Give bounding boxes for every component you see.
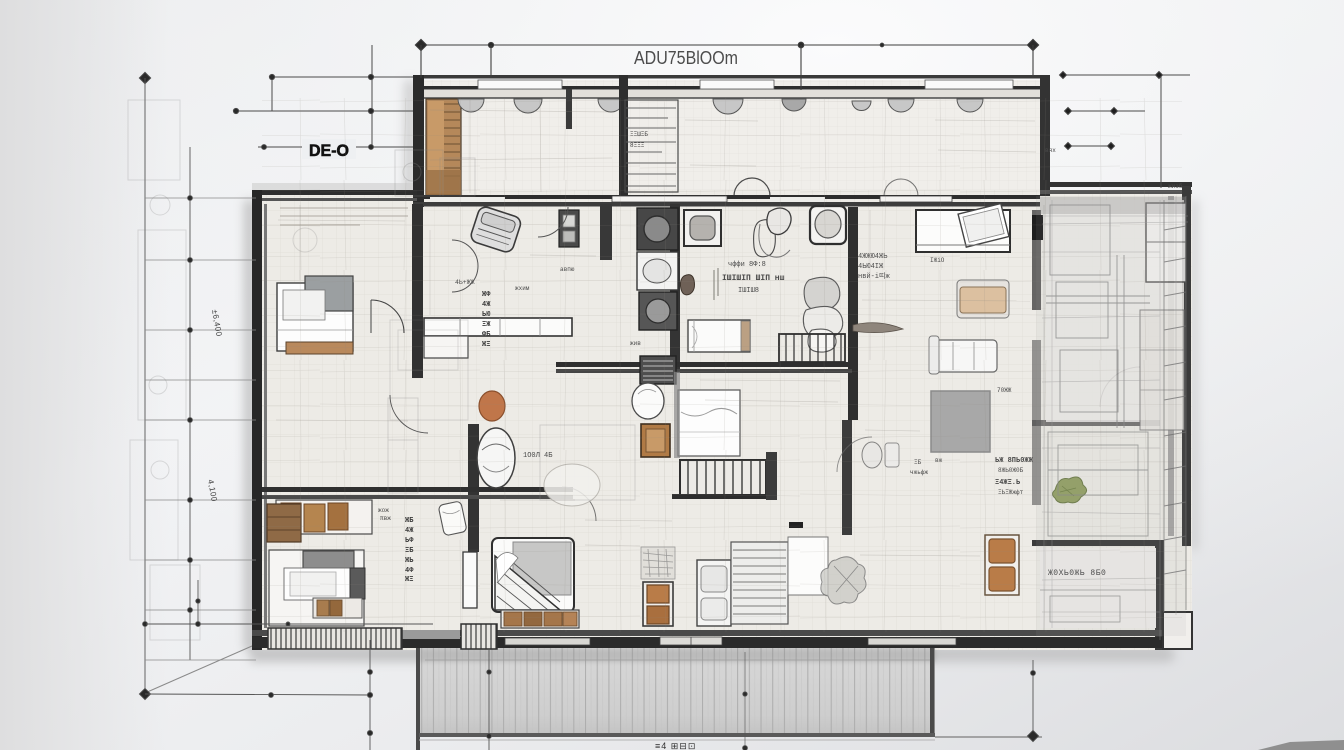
svg-text:ADU75BlOOm: ADU75BlOOm: [634, 48, 738, 68]
svg-text:≡4 ⊞⊟⊡: ≡4 ⊞⊟⊡: [655, 741, 696, 750]
